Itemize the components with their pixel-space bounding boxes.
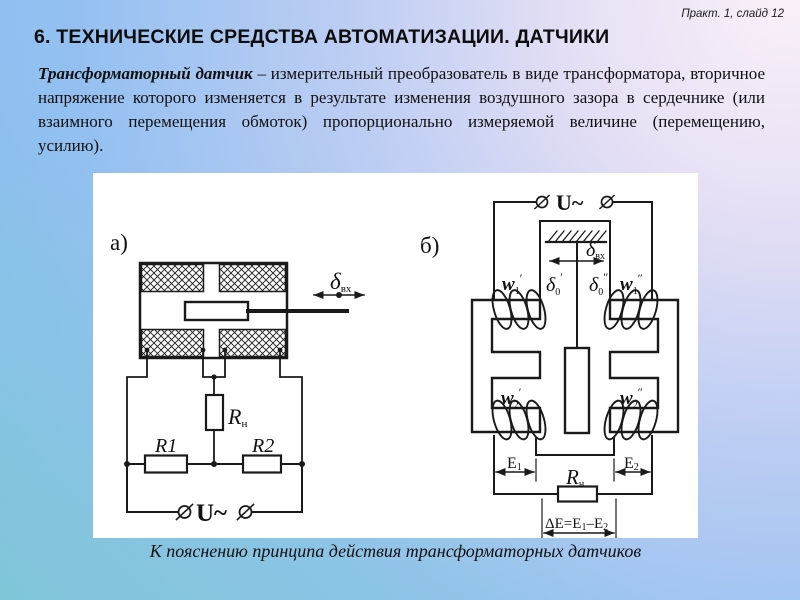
e2-label: E2: [624, 455, 639, 473]
core-hatch-bottom-right: [220, 330, 286, 357]
supply-label-a: U~: [196, 500, 227, 527]
left-e-core: [472, 300, 540, 432]
core-hatch-top-right: [220, 265, 286, 292]
figure-caption: К пояснению принципа действия трансформа…: [93, 541, 698, 562]
series-wire: [536, 438, 614, 455]
core-hatch-top-left: [142, 265, 204, 292]
circuit-diagram-a: а) δвх Rн R1 R2: [110, 230, 364, 527]
delta0-right-label: δ0″: [589, 270, 608, 298]
e1-label: E1: [507, 455, 522, 473]
rn-label-a: Rн: [227, 404, 247, 430]
resistor-r1: [145, 456, 187, 473]
right-e-core: [610, 300, 678, 432]
figure-panel: а) δвх Rн R1 R2: [93, 173, 698, 538]
junction-dot: [211, 461, 217, 467]
delta-in-label-a: δвх: [330, 269, 352, 295]
slide-title: 6. ТЕХНИЧЕСКИЕ СРЕДСТВА АВТОМАТИЗАЦИИ. Д…: [34, 26, 774, 49]
panel-a-label: а): [110, 230, 128, 255]
core-hatch-bottom-left: [142, 330, 204, 357]
delta-e-label: ΔE=E1–E2: [545, 516, 608, 533]
panel-b-label: б): [420, 233, 439, 258]
supply-label-b: U~: [556, 190, 584, 215]
fixed-support-hatch: [548, 231, 606, 242]
delta0-left-label: δ0′: [546, 270, 563, 298]
transformer-sensor-diagram: а) δвх Rн R1 R2: [93, 173, 698, 538]
definition-paragraph: Трансформаторный датчик – измерительный …: [38, 62, 765, 158]
w2-left-label: w2′: [501, 385, 522, 411]
r1-label: R1: [154, 435, 177, 457]
resistor-rn-a: [206, 395, 223, 430]
junction-dot: [211, 374, 216, 379]
r2-label: R2: [251, 435, 274, 457]
term-lead: Трансформаторный датчик: [38, 64, 253, 83]
central-armature: [565, 348, 589, 433]
resistor-r2: [243, 456, 281, 473]
circuit-diagram-b: б) U~ δвх δ0′ δ0″ w1′ w1″: [420, 190, 678, 538]
armature: [185, 302, 248, 320]
rn-label-b: Rн: [565, 465, 585, 490]
slide-reference: Практ. 1, слайд 12: [681, 8, 784, 20]
